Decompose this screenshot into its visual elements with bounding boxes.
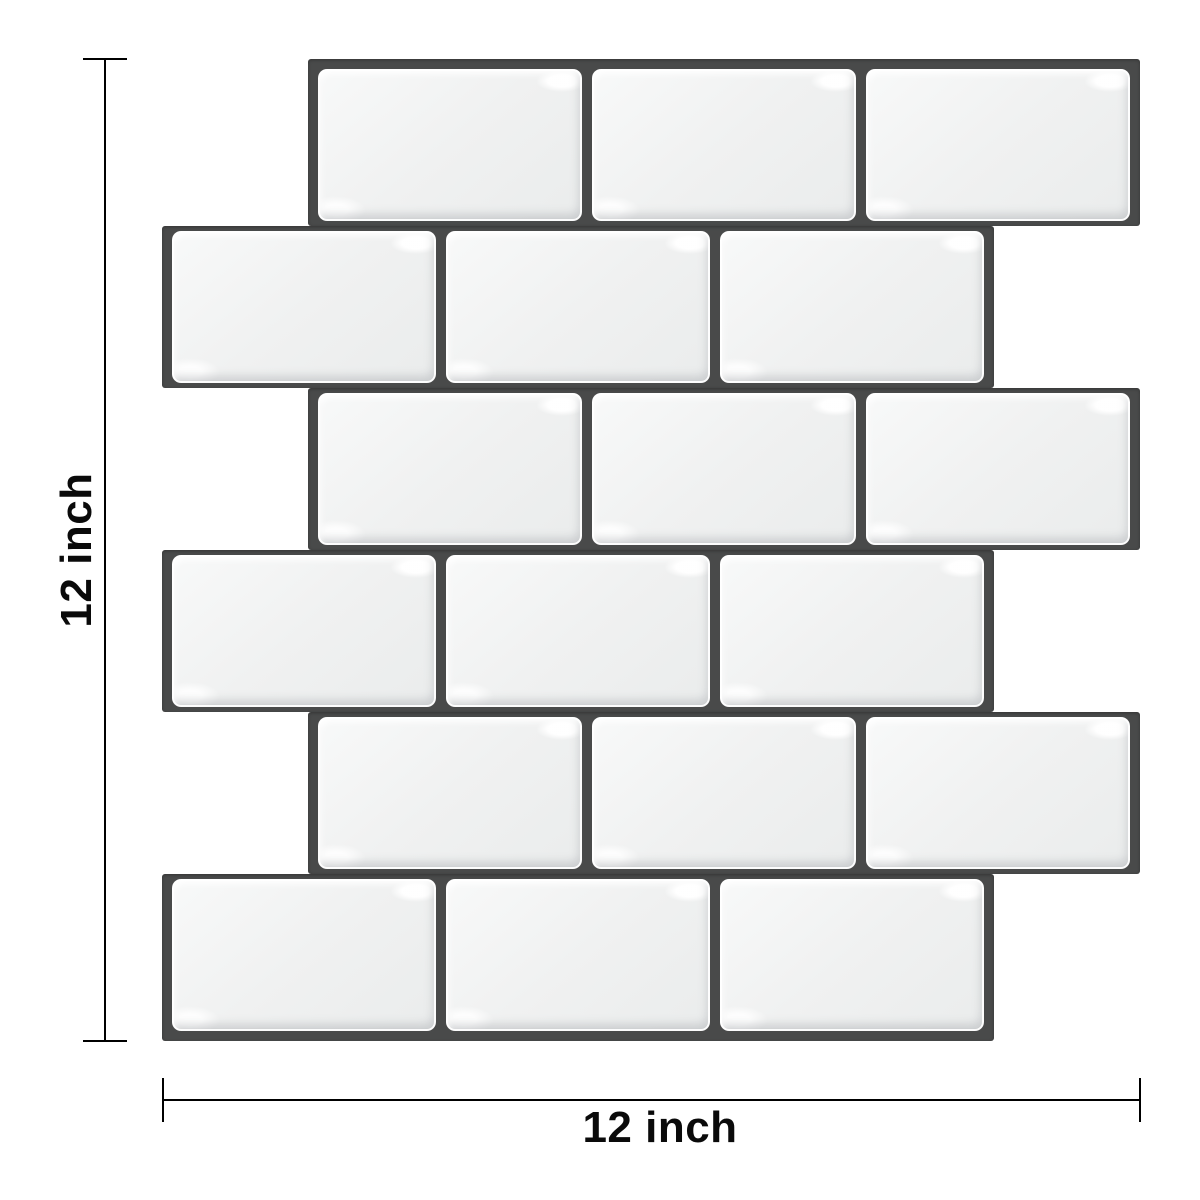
subway-tile <box>592 717 856 869</box>
grout-row <box>308 712 1140 874</box>
width-dimension-right-tick <box>1139 1078 1141 1122</box>
subway-tile <box>172 879 436 1031</box>
subway-tile <box>318 393 582 545</box>
tile-panel <box>0 0 1200 1200</box>
subway-tile <box>318 717 582 869</box>
height-dimension-line <box>104 59 106 1041</box>
grout-row <box>162 874 994 1041</box>
width-dimension-line <box>163 1099 1141 1101</box>
grout-row <box>308 59 1140 226</box>
height-dimension-bottom-cap <box>83 1040 127 1042</box>
subway-tile <box>446 555 710 707</box>
height-dimension-label: 12 inch <box>55 450 99 650</box>
subway-tile <box>172 231 436 383</box>
subway-tile <box>592 393 856 545</box>
subway-tile <box>866 69 1130 221</box>
grout-row <box>162 550 994 712</box>
subway-tile <box>720 231 984 383</box>
product-image: 12 inch 12 inch <box>0 0 1200 1200</box>
subway-tile <box>720 555 984 707</box>
subway-tile <box>866 393 1130 545</box>
subway-tile <box>866 717 1130 869</box>
height-dimension-top-cap <box>83 58 127 60</box>
subway-tile <box>172 555 436 707</box>
subway-tile <box>720 879 984 1031</box>
subway-tile <box>446 879 710 1031</box>
grout-row <box>308 388 1140 550</box>
grout-row <box>162 226 994 388</box>
width-dimension-label: 12 inch <box>460 1106 860 1150</box>
subway-tile <box>318 69 582 221</box>
subway-tile <box>446 231 710 383</box>
subway-tile <box>592 69 856 221</box>
width-dimension-left-tick <box>162 1078 164 1122</box>
